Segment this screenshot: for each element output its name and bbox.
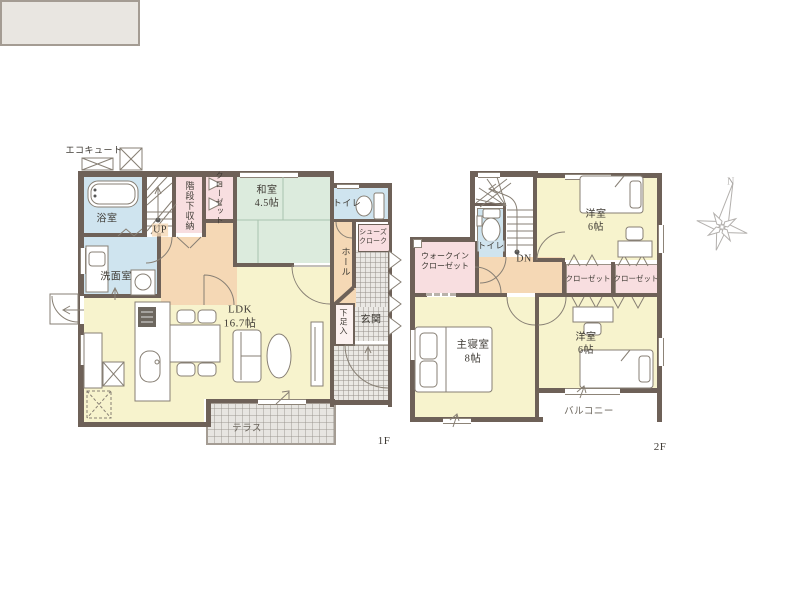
closet-1f-label: クローゼット [215, 171, 223, 225]
walk-in-closet-label: ウォークイン クローゼット [421, 252, 469, 273]
bedroom-bottom-size: 6帖 [578, 345, 594, 356]
master-bedroom-label: 主寝室 8帖 [457, 338, 490, 365]
appliance-space-dashed [87, 391, 111, 418]
stairs-down-label: DN [516, 253, 531, 266]
bathtub-icon [88, 181, 138, 207]
ldk-name: LDK [228, 304, 252, 316]
master-bedroom-size: 8帖 [465, 353, 482, 364]
dining-set-icon [170, 310, 220, 376]
fixtures-overlay [0, 0, 800, 600]
opening-arrow [365, 347, 371, 360]
washing-machine-icon [131, 270, 155, 295]
washroom-label: 洗面室 [100, 271, 132, 284]
washitsu-size: 4.5帖 [255, 198, 280, 209]
washitsu-label: 和室 4.5帖 [255, 184, 280, 210]
wic-line1: ウォークイン [421, 252, 469, 261]
floorplan-canvas: エコキュート 浴室 洗面室 UP 階段下収納 クローゼット 和室 4.5帖 トイ… [0, 0, 800, 600]
bedroom-bottom-name: 洋室 [576, 332, 597, 343]
entrance-label: 玄関 [361, 314, 382, 327]
bath-label: 浴室 [97, 213, 118, 226]
balcony-label: バルコニー [564, 406, 614, 418]
opening-arrow [276, 391, 289, 404]
closet-2f-right-label: クローゼット [614, 274, 659, 284]
kitchen-island-icon [135, 302, 170, 401]
stairs-up-label: UP [152, 224, 168, 237]
closet-2f-left-label: クローゼット [566, 274, 611, 284]
terrace-label: テラス [232, 423, 262, 435]
floor2-label: 2F [654, 440, 667, 454]
bedroom-bottom-label: 洋室 6帖 [576, 331, 597, 357]
ldk-size: 16.7帖 [224, 318, 257, 330]
back-door-icon [50, 294, 84, 324]
opening-arrow [577, 386, 586, 398]
hall-1f-label: ホール [341, 247, 350, 277]
master-bedroom-name: 主寝室 [457, 339, 490, 350]
under-stair-storage-label: 階段下収納 [185, 181, 194, 231]
living-table-icon [267, 334, 291, 378]
shoes-cloak-line2: クローク [359, 237, 387, 245]
opening-arrow [112, 288, 118, 300]
ecocute-label: エコキュート [65, 145, 122, 157]
bedroom-top-name: 洋室 [586, 209, 607, 220]
storage-double-door [177, 237, 201, 248]
ldk-label: LDK 16.7帖 [224, 303, 257, 332]
bedroom-top-label: 洋室 6帖 [586, 208, 607, 234]
toilet-icon-2f [477, 209, 500, 242]
opening-arrow [450, 414, 459, 427]
toilet-1f-label: トイレ [333, 198, 362, 210]
desk-chair-top-room [618, 227, 652, 257]
refrigerator-icon [103, 362, 124, 386]
bath-folding-door [118, 229, 142, 236]
compass-rose-icon [691, 177, 758, 257]
toilet-2f-label: トイレ [477, 240, 504, 251]
wic-line2: クローゼット [421, 262, 469, 271]
closet-bifold-marks [572, 297, 644, 308]
sofa-icon [233, 330, 261, 382]
compass-north-label: N [727, 176, 735, 189]
shoe-cabinet-label: 下足入 [339, 309, 347, 336]
washitsu-name: 和室 [257, 185, 278, 196]
vanity-icon [86, 246, 108, 292]
floor1-label: 1F [378, 434, 391, 448]
bedroom-top-size: 6帖 [588, 222, 604, 233]
kitchen-counter-icon [84, 333, 102, 388]
shoes-cloak-line1: シューズ [359, 228, 387, 236]
entrance-louver-chevrons [389, 251, 401, 335]
tv-board-icon [311, 322, 323, 386]
shoes-cloak-label: シューズ クローク [359, 228, 387, 246]
tatami-lines [237, 177, 330, 263]
